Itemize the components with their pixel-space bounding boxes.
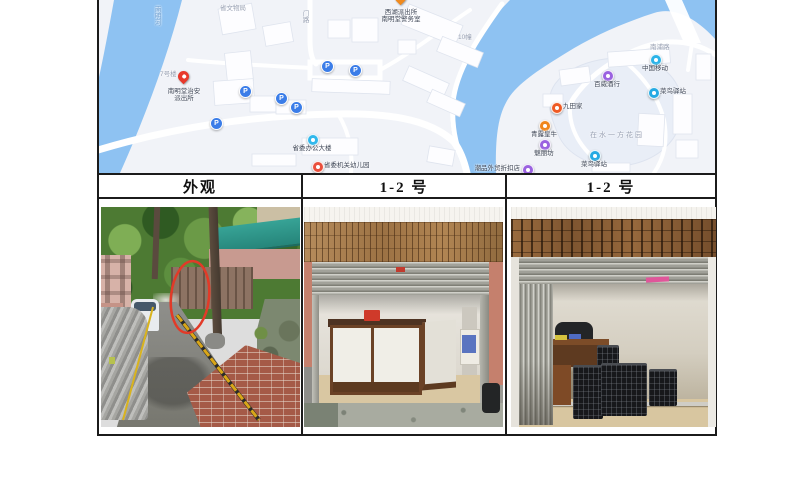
roller-shutter [515,257,712,284]
black-bag [482,383,500,413]
map-poi-label: 中国移动 [642,65,668,72]
table-row-line-2 [97,197,717,199]
salmon-pillar-left [304,262,312,367]
mossy-patch [304,403,338,427]
map-poi-label: 魅丽坊 [534,150,554,157]
location-map[interactable]: 南明河省文物局门路7号楼10幢南浦路在水一方花园南明堂治安派出所西湖派出所南明堂… [98,0,716,173]
document-page: { "table": { "headers": ["外观", "1-2 号", … [0,0,800,500]
header-exterior: 外观 [99,175,301,197]
map-poi-label: 青露皇牛 [531,131,557,138]
table-divider-2 [505,173,507,436]
blue-poster [462,335,476,353]
red-tag-on-shutter [396,267,405,272]
map-area-label: 在水一方花园 [590,132,644,140]
photo-exterior-alley [101,207,300,427]
parking-icon[interactable]: P [321,60,334,73]
map-area-label: 省文物局 [220,5,246,12]
ceiling [304,207,503,222]
wood-slat-cladding [511,219,716,257]
header-unit-1-2-b: 1-2 号 [507,175,715,197]
map-area-label: 门路 [301,10,308,23]
yellow-papers [555,335,567,340]
table-border-left [97,0,99,436]
map-poi-label: 百威酒行 [594,81,620,88]
map-poi-label: 菜鸟驿站 [581,161,607,168]
parking-icon[interactable]: P [290,101,303,114]
map-area-label: 南浦路 [650,44,670,51]
parking-icon[interactable]: P [275,92,288,105]
brown-cabinet [551,365,571,405]
map-poi-icon[interactable] [312,161,324,173]
parking-icon[interactable]: P [239,85,252,98]
table-bottom-line [97,434,717,436]
map-poi-icon[interactable] [551,102,563,114]
map-poi-label: 九田家 [563,103,583,110]
wood-slat-cladding [304,222,503,262]
blue-papers [569,334,581,339]
counter-side [422,320,456,391]
red-ellipse-annotation [167,259,212,335]
plastic-crate [573,365,603,419]
map-poi-icon[interactable] [522,164,534,173]
folding-gate [518,284,553,425]
map-poi-label: 省委机关幼儿园 [324,162,370,169]
white-pillar-right [708,257,716,427]
map-poi-label: 潮品外贸折扣店 [475,165,521,172]
table-divider-1 [301,173,303,436]
map-poi-label: 省委办公大楼 [293,145,332,152]
parking-icon[interactable]: P [210,117,223,130]
map-poi-label: 西湖派出所南明堂警务室 [382,9,421,24]
plastic-crate [601,363,647,416]
header-unit-1-2: 1-2 号 [303,175,505,197]
map-poi-icon[interactable] [648,87,660,99]
map-poi-label: 菜鸟驿站 [660,88,686,95]
ceiling [511,207,716,219]
parking-icon[interactable]: P [349,64,362,77]
plastic-crate [649,369,677,406]
white-pillar-left [511,257,519,427]
photo-shop-crates [511,207,716,427]
pillar-base-left [304,367,312,407]
photo-shop-counter [304,207,503,427]
map-area-label: 南明河 [153,6,160,26]
red-object [364,310,380,321]
road-markings-and-annotation [101,207,300,427]
map-base [98,0,716,173]
map-area-label: 7号楼 [160,71,177,78]
salmon-pillar-right [489,262,503,385]
map-area-label: 10幢 [458,34,472,41]
map-poi-label: 南明堂治安派出所 [168,88,201,103]
white-counter [330,325,422,395]
